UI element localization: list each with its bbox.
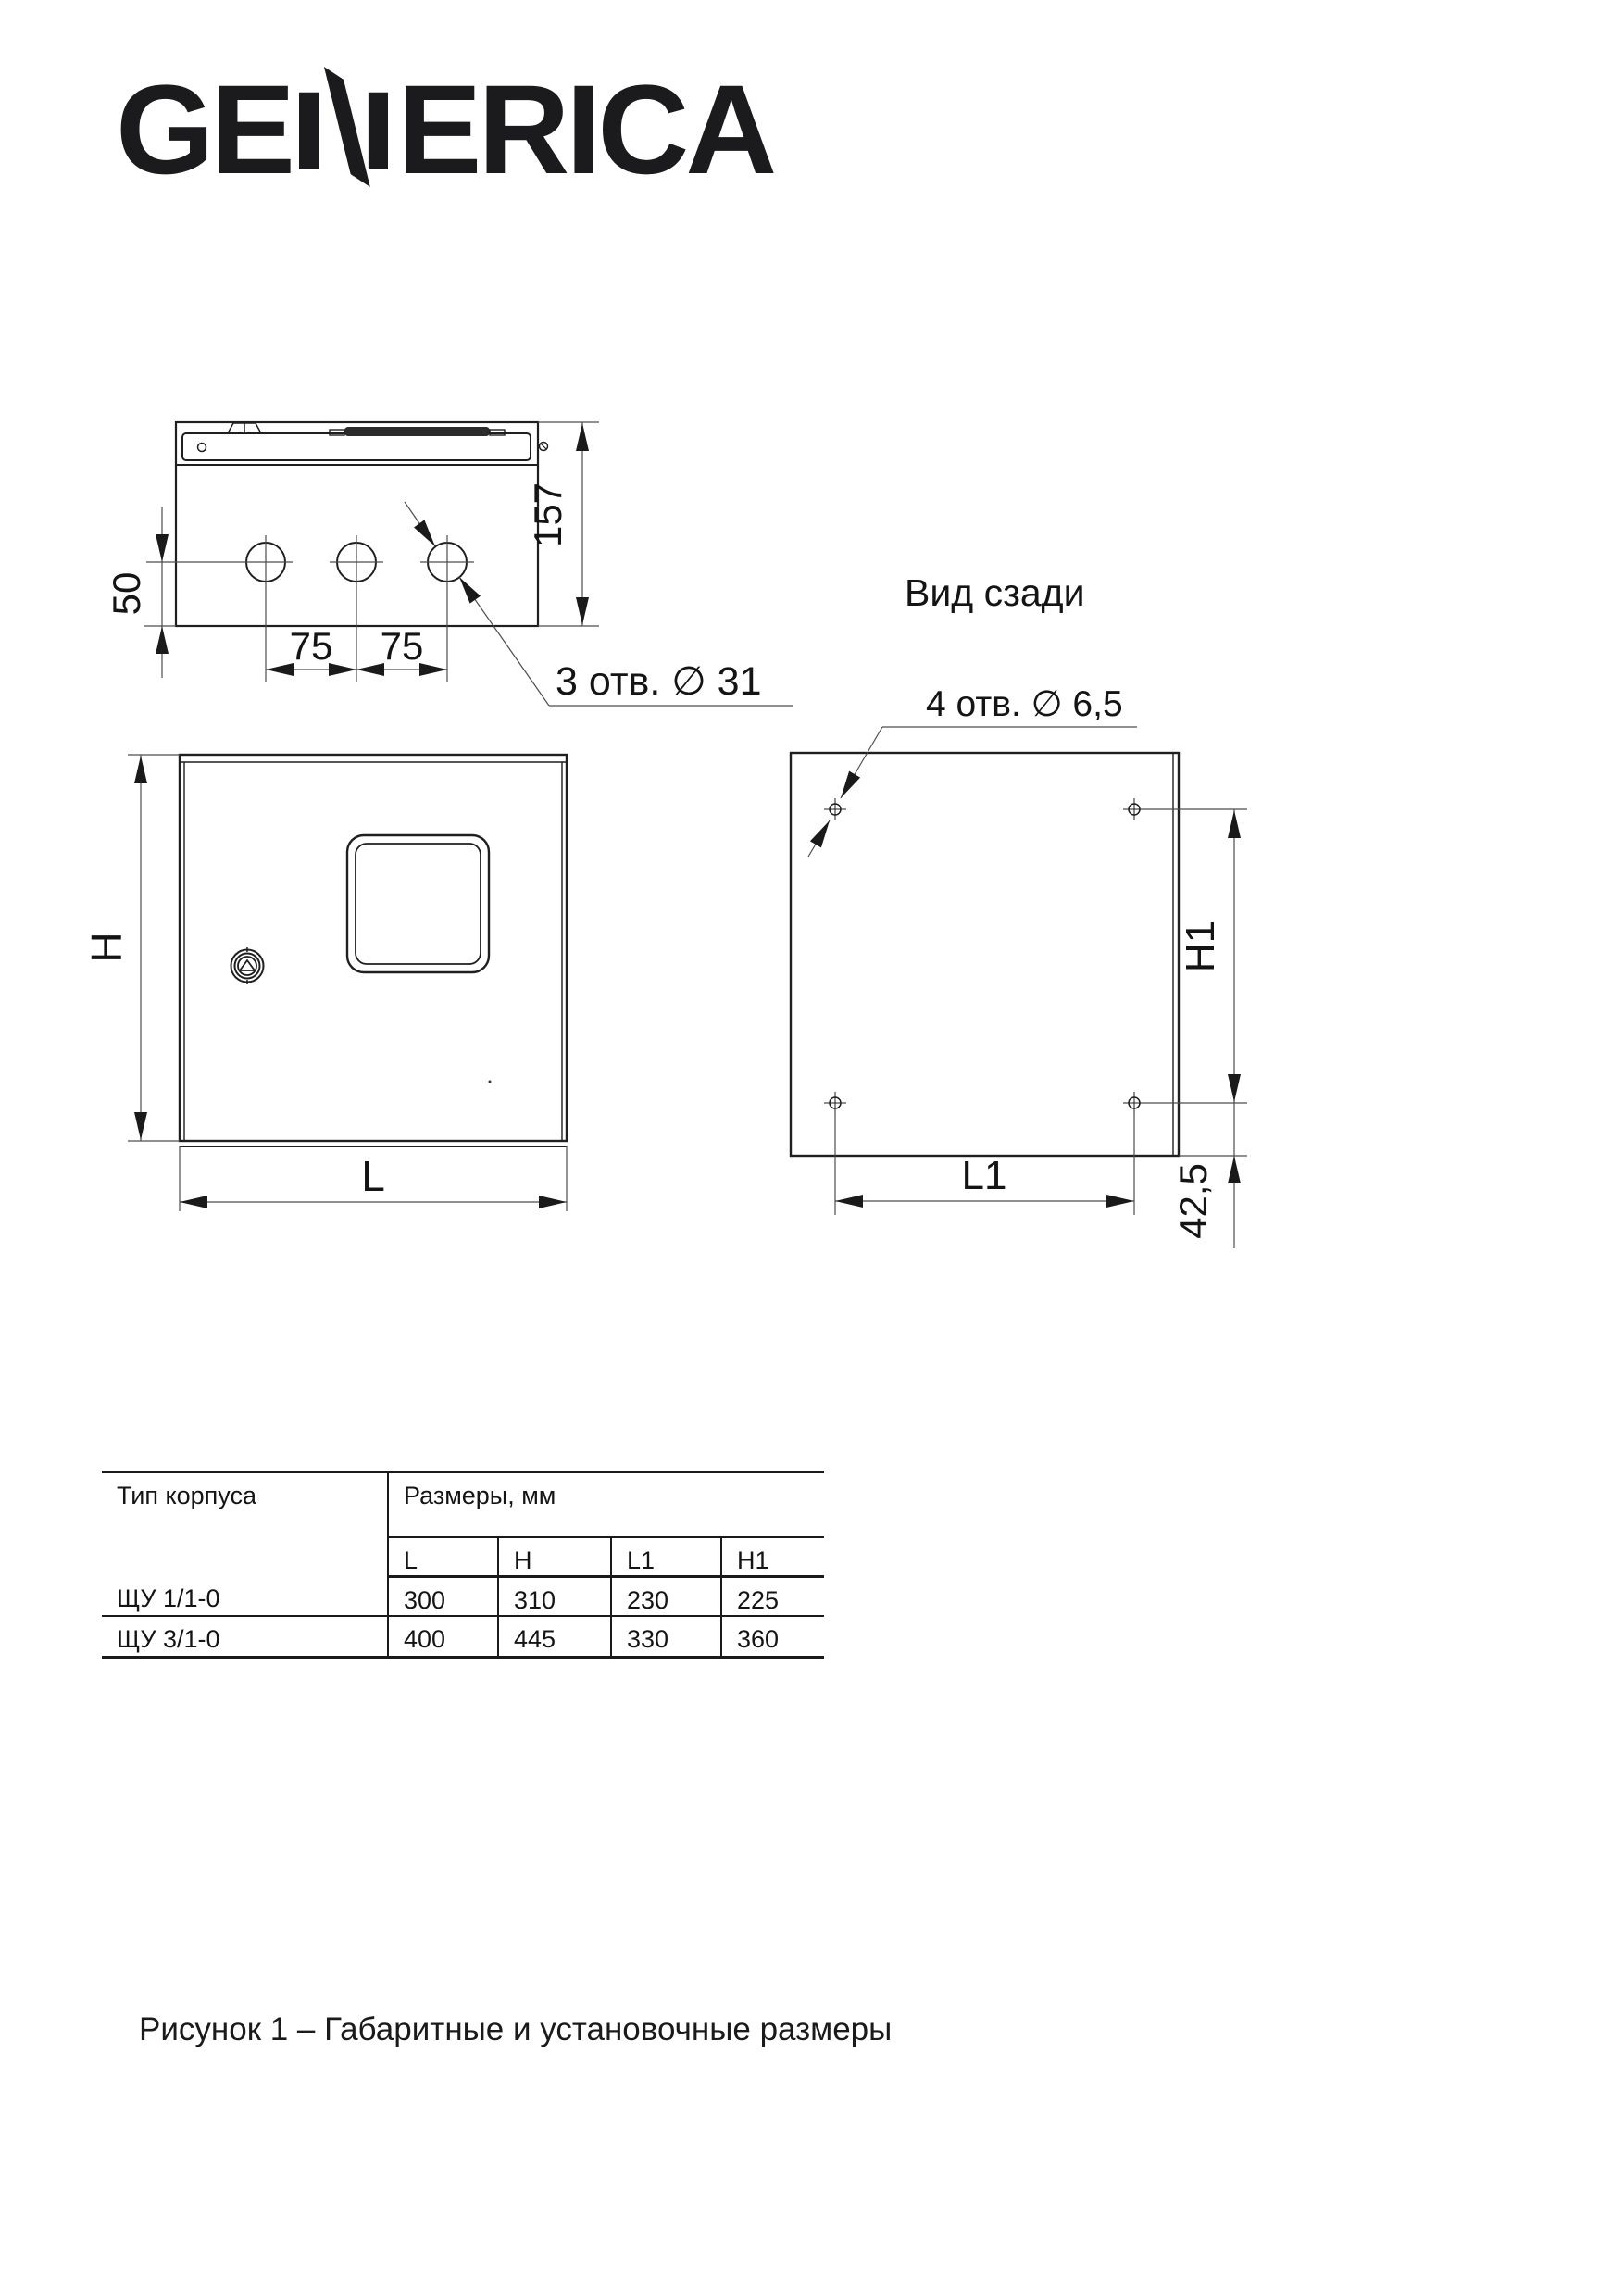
value-cell: 310 <box>498 1576 611 1616</box>
arrowhead <box>419 663 447 676</box>
body-type-cell: ЩУ 3/1-0 <box>102 1616 388 1658</box>
table-header-row: Тип корпуса Размеры, мм <box>102 1472 824 1537</box>
arrowhead <box>1228 810 1241 838</box>
top-view-door-edge <box>182 433 531 460</box>
table-col-H1: H1 <box>721 1537 824 1577</box>
front-view <box>180 755 567 1146</box>
arrowhead <box>134 1112 147 1140</box>
arrowhead <box>835 1195 863 1208</box>
arrowhead <box>414 520 435 546</box>
dim-label-42-5: 42,5 <box>1171 1163 1215 1239</box>
arrowhead <box>1228 1156 1241 1183</box>
arrowhead <box>156 626 169 654</box>
arrowhead <box>156 534 169 562</box>
value-cell: 225 <box>721 1576 824 1616</box>
front-view-labels: H L <box>82 932 385 1200</box>
arrowhead <box>180 1196 207 1208</box>
arrowhead <box>329 663 356 676</box>
arrowhead <box>134 756 147 783</box>
value-cell: 360 <box>721 1616 824 1658</box>
arrowhead <box>810 820 830 847</box>
top-view-screw-slot <box>541 444 546 449</box>
meter-window-outer <box>347 835 489 972</box>
table-col-L1: L1 <box>611 1537 721 1577</box>
rear-view-outline <box>791 753 1179 1156</box>
front-view-dimensions <box>128 755 567 1211</box>
rear-view-title: Вид сзади <box>905 571 1085 614</box>
datasheet-page: GE ERICA <box>0 0 1624 2291</box>
mounting-holes <box>824 798 1145 1114</box>
dimensions-table: Тип корпуса Размеры, мм L H L1 H1 ЩУ 1/1… <box>102 1471 824 1659</box>
top-view-handle <box>344 427 490 436</box>
dim-label-50: 50 <box>105 572 148 616</box>
value-cell: 300 <box>388 1576 498 1616</box>
holes-note-4x65: 4 отв. ∅ 6,5 <box>926 684 1123 724</box>
value-cell: 230 <box>611 1576 721 1616</box>
value-cell: 330 <box>611 1616 721 1658</box>
holes-note-3x31: 3 отв. ∅ 31 <box>556 659 762 704</box>
rear-view <box>791 753 1179 1156</box>
dim-label-157: 157 <box>526 482 569 547</box>
top-view-screw-left <box>198 444 206 452</box>
table-row: ЩУ 1/1-0 300 310 230 225 <box>102 1576 824 1616</box>
figure-caption: Рисунок 1 – Габаритные и установочные ра… <box>139 2011 892 2048</box>
arrowhead <box>576 423 589 451</box>
table-col-H: H <box>498 1537 611 1577</box>
rear-view-labels: Вид сзади 4 отв. ∅ 6,5 H1 L1 42,5 <box>905 571 1223 1239</box>
dim-label-H1: H1 <box>1178 920 1223 972</box>
arrowhead <box>539 1196 567 1208</box>
dim-label-L1: L1 <box>962 1153 1007 1198</box>
table-header-dimensions-group: Размеры, мм <box>388 1472 824 1537</box>
door-lock <box>231 947 264 984</box>
arrowhead <box>576 597 589 625</box>
dim-label-75-left: 75 <box>290 624 333 668</box>
table-col-L: L <box>388 1537 498 1577</box>
value-cell: 400 <box>388 1616 498 1658</box>
surface-speck <box>489 1081 492 1083</box>
top-view <box>176 422 548 626</box>
value-cell: 445 <box>498 1616 611 1658</box>
meter-window-inner <box>356 844 481 964</box>
table-row: ЩУ 3/1-0 400 445 330 360 <box>102 1616 824 1658</box>
arrowhead <box>841 771 860 798</box>
body-type-cell: ЩУ 1/1-0 <box>102 1576 388 1616</box>
front-view-outline <box>180 755 567 1141</box>
table-header-body-type: Тип корпуса <box>102 1472 388 1577</box>
arrowhead <box>1106 1195 1134 1208</box>
dim-label-H: H <box>82 932 131 962</box>
dim-label-L: L <box>361 1152 385 1200</box>
dim-label-75-right: 75 <box>381 624 424 668</box>
technical-drawing-canvas: 50 157 75 75 3 отв. ∅ 31 <box>0 0 1624 2291</box>
arrowhead <box>459 577 481 604</box>
arrowhead <box>1228 1074 1241 1102</box>
